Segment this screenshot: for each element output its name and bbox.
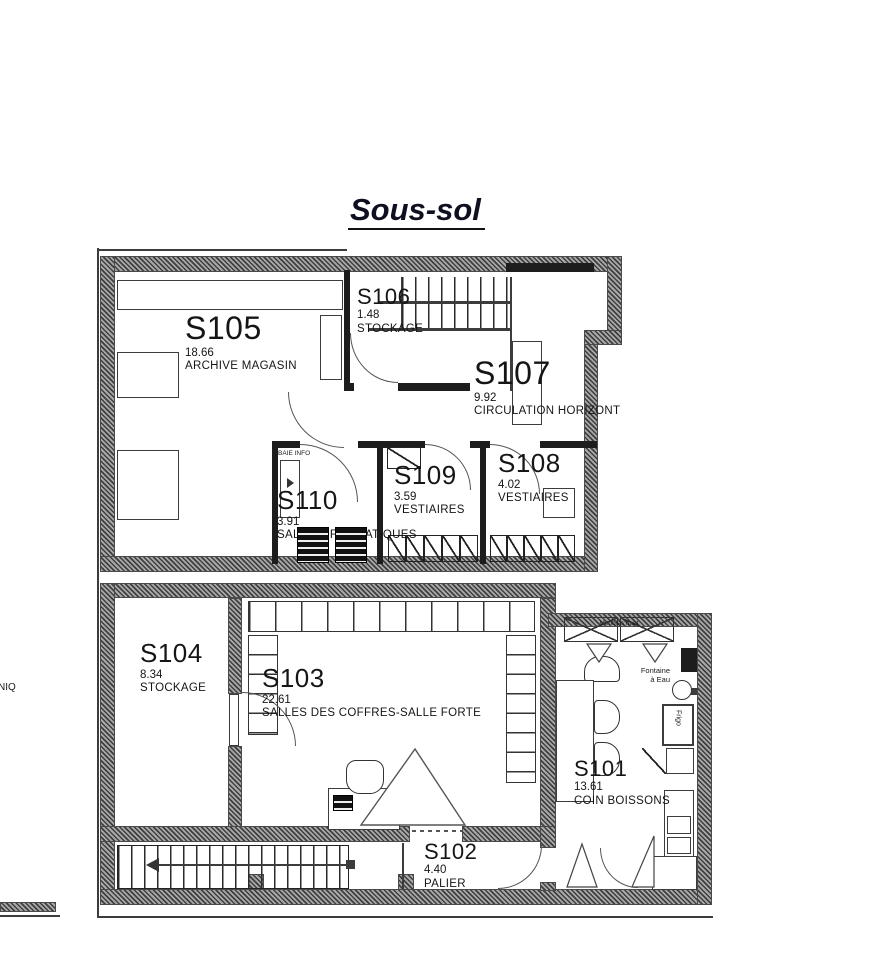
- stair-arrow-head-icon: [146, 858, 159, 872]
- stair-arrow-tail: [346, 860, 355, 869]
- wall-left-upper: [100, 256, 115, 572]
- door-sill-s102: [412, 830, 462, 832]
- wall-bottom-lower: [100, 889, 712, 905]
- fontaine-line2: à Eau: [650, 675, 670, 684]
- wall-s102-right-b: [540, 882, 556, 891]
- shelf-right-s103: [506, 635, 536, 783]
- sink-basin: [667, 837, 691, 854]
- computer-s103: [333, 795, 353, 811]
- room-label-s105: S105 18.66 ARCHIVE MAGASIN: [185, 312, 297, 372]
- page-title: Sous-sol: [348, 192, 485, 228]
- wall-top-black-segment: [506, 263, 594, 272]
- frame-line-top: [97, 249, 347, 251]
- it-device: [297, 527, 329, 563]
- wall-s101-notch: [681, 648, 697, 672]
- locker: [490, 535, 507, 562]
- stair-arrow-line: [158, 864, 348, 866]
- floor-plan: Sous-sol NIQ: [0, 0, 882, 960]
- room-label-s103: S103 22.61 SALLES DES COFFRES-SALLE FORT…: [262, 665, 481, 719]
- door-arc-s102-s101: [498, 845, 542, 889]
- stair-landing-edge: [402, 843, 404, 889]
- room-label-s107: S107 9.92 CIRCULATION HORIZONT: [474, 357, 620, 417]
- locker: [524, 535, 541, 562]
- chair-s101: [594, 700, 620, 734]
- frame-line-bottom: [97, 916, 713, 918]
- shelf-left-s105-b: [117, 450, 179, 520]
- wall-s102-right-a: [540, 826, 556, 848]
- locker: [424, 535, 442, 562]
- door-arc-s106: [350, 333, 398, 383]
- partition-under-s106-b: [398, 383, 470, 391]
- edge-fragment-line: [0, 915, 60, 917]
- sink-basin: [667, 816, 691, 834]
- room-label-s106: S106 1.48 STOCKAGE: [357, 285, 423, 335]
- edge-wall-fragment: [0, 902, 56, 912]
- edge-truncated-text: NIQ: [0, 682, 16, 693]
- wall-top-lower: [100, 583, 556, 598]
- room-label-s104: S104 8.34 STOCKAGE: [140, 640, 206, 694]
- counter-s101: [652, 856, 697, 890]
- partition-s105-s106: [344, 270, 350, 391]
- partition-row-top-d: [540, 441, 597, 448]
- fridge-label: Frigo: [675, 710, 682, 726]
- door-arc-s101-bottom: [600, 848, 638, 888]
- locker: [558, 535, 575, 562]
- it-device: [335, 527, 367, 563]
- safe-deposit-row: [248, 601, 535, 632]
- baie-info-label: BAIE INFO: [278, 450, 310, 457]
- room-label-s102: S102 4.40 PALIER: [424, 840, 477, 890]
- cabinet-s105: [320, 315, 342, 380]
- room-label-s101: S101 13.61 COIN BOISSONS: [574, 757, 670, 807]
- partition-under-s106-a: [344, 383, 354, 391]
- locker: [460, 535, 478, 562]
- wall-right-notch: [584, 330, 622, 345]
- microwave: [666, 748, 694, 774]
- door-swing-s102-s103: [355, 745, 470, 829]
- shelf-left-s105-a: [117, 352, 179, 398]
- fontaine-line1: Fontaine: [641, 666, 670, 675]
- door-arc-s105: [288, 392, 344, 448]
- door-swing-s101-left: [566, 842, 598, 889]
- cabinet-swing-icon: [586, 643, 612, 663]
- wall-s103-s101: [540, 598, 556, 828]
- partition-s109-s108: [480, 441, 486, 564]
- locker: [442, 535, 460, 562]
- fontaine-label: Fontaine à Eau: [622, 666, 670, 684]
- wall-left-lower: [100, 583, 115, 905]
- shelf-top-s105: [117, 280, 343, 310]
- wall-stub-b: [398, 874, 414, 890]
- locker: [507, 535, 524, 562]
- wall-s101-right: [697, 613, 712, 905]
- fridge: Frigo: [662, 704, 694, 746]
- frame-line-left: [97, 248, 99, 918]
- room-label-s108: S108 4.02 VESTIAIRES: [498, 450, 569, 504]
- wall-s104-right-a: [228, 598, 242, 694]
- water-fountain: [672, 680, 692, 700]
- meubles-haut-label: Meubles haut: [588, 620, 650, 627]
- cabinet-swing-icon: [642, 643, 668, 663]
- locker: [541, 535, 558, 562]
- door-leaf-s104: [229, 694, 239, 746]
